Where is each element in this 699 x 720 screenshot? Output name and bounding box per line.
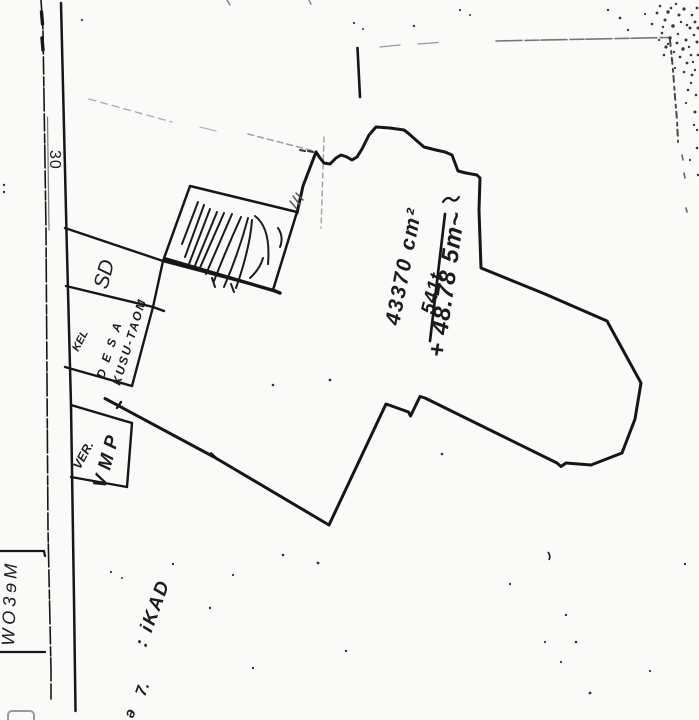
svg-text:7.: 7. <box>133 680 154 698</box>
svg-text:: iKAD: : iKAD <box>131 577 175 650</box>
svg-text:KEL: KEL <box>70 328 91 353</box>
svg-text:SD: SD <box>90 257 120 291</box>
svg-text:WO3ɘM: WO3ɘM <box>0 559 21 646</box>
svg-text:ə: ə <box>121 707 140 720</box>
svg-text:VER.: VER. <box>70 439 96 471</box>
svg-text:VMP: VMP <box>90 428 126 491</box>
svg-text:30: 30 <box>46 150 63 170</box>
